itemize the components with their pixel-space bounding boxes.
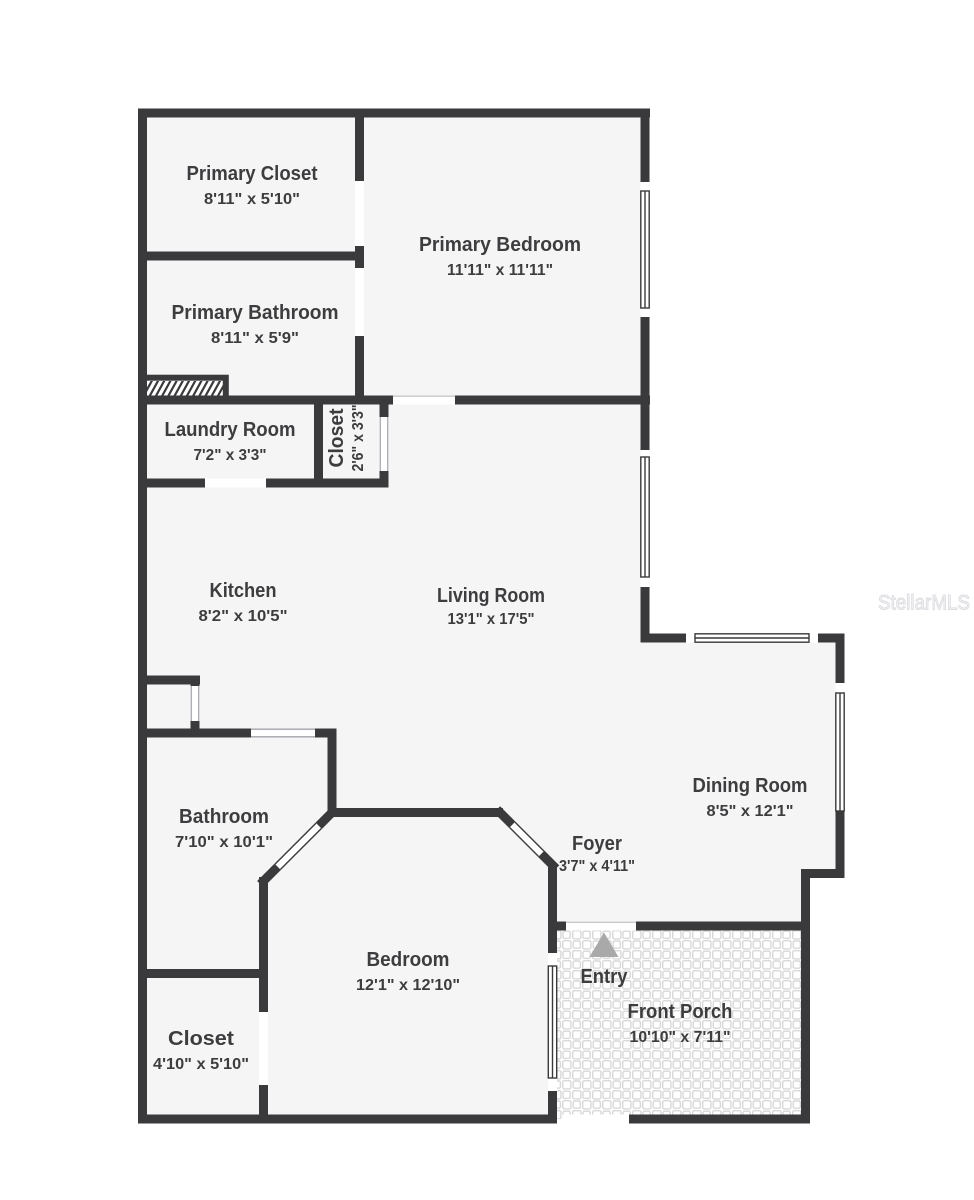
svg-text:Primary Bathroom: Primary Bathroom	[172, 302, 339, 324]
svg-text:Front Porch: Front Porch	[628, 1001, 733, 1023]
svg-text:12'1" x 12'10": 12'1" x 12'10"	[356, 977, 460, 994]
svg-text:2'6" x 3'3": 2'6" x 3'3"	[350, 405, 367, 472]
svg-text:Primary Closet: Primary Closet	[187, 163, 318, 185]
svg-text:8'11" x 5'10": 8'11" x 5'10"	[204, 191, 300, 208]
svg-text:Foyer: Foyer	[572, 833, 622, 855]
svg-text:Living Room: Living Room	[437, 585, 545, 607]
svg-text:Bathroom: Bathroom	[179, 806, 269, 828]
svg-text:Laundry Room: Laundry Room	[165, 419, 296, 441]
svg-text:Entry: Entry	[581, 966, 629, 988]
svg-text:8'2" x 10'5": 8'2" x 10'5"	[199, 608, 288, 625]
svg-text:Bedroom: Bedroom	[367, 949, 450, 971]
svg-text:8'11" x 5'9": 8'11" x 5'9"	[211, 330, 299, 347]
svg-text:Kitchen: Kitchen	[210, 580, 277, 602]
svg-text:Primary Bedroom: Primary Bedroom	[419, 234, 581, 256]
svg-text:11'11" x 11'11": 11'11" x 11'11"	[447, 262, 553, 279]
svg-text:Closet: Closet	[168, 1028, 234, 1050]
svg-text:13'1" x 17'5": 13'1" x 17'5"	[448, 611, 535, 628]
svg-text:10'10" x 7'11": 10'10" x 7'11"	[630, 1029, 731, 1046]
svg-text:7'2" x 3'3": 7'2" x 3'3"	[194, 447, 267, 464]
svg-text:Closet: Closet	[326, 408, 348, 467]
svg-text:3'7" x 4'11": 3'7" x 4'11"	[559, 858, 635, 875]
svg-text:7'10" x 10'1": 7'10" x 10'1"	[175, 834, 273, 851]
svg-text:StellarMLS: StellarMLS	[878, 591, 970, 615]
svg-text:8'5" x 12'1": 8'5" x 12'1"	[707, 803, 794, 820]
svg-text:4'10" x 5'10": 4'10" x 5'10"	[153, 1056, 249, 1073]
svg-text:Dining Room: Dining Room	[693, 775, 808, 797]
